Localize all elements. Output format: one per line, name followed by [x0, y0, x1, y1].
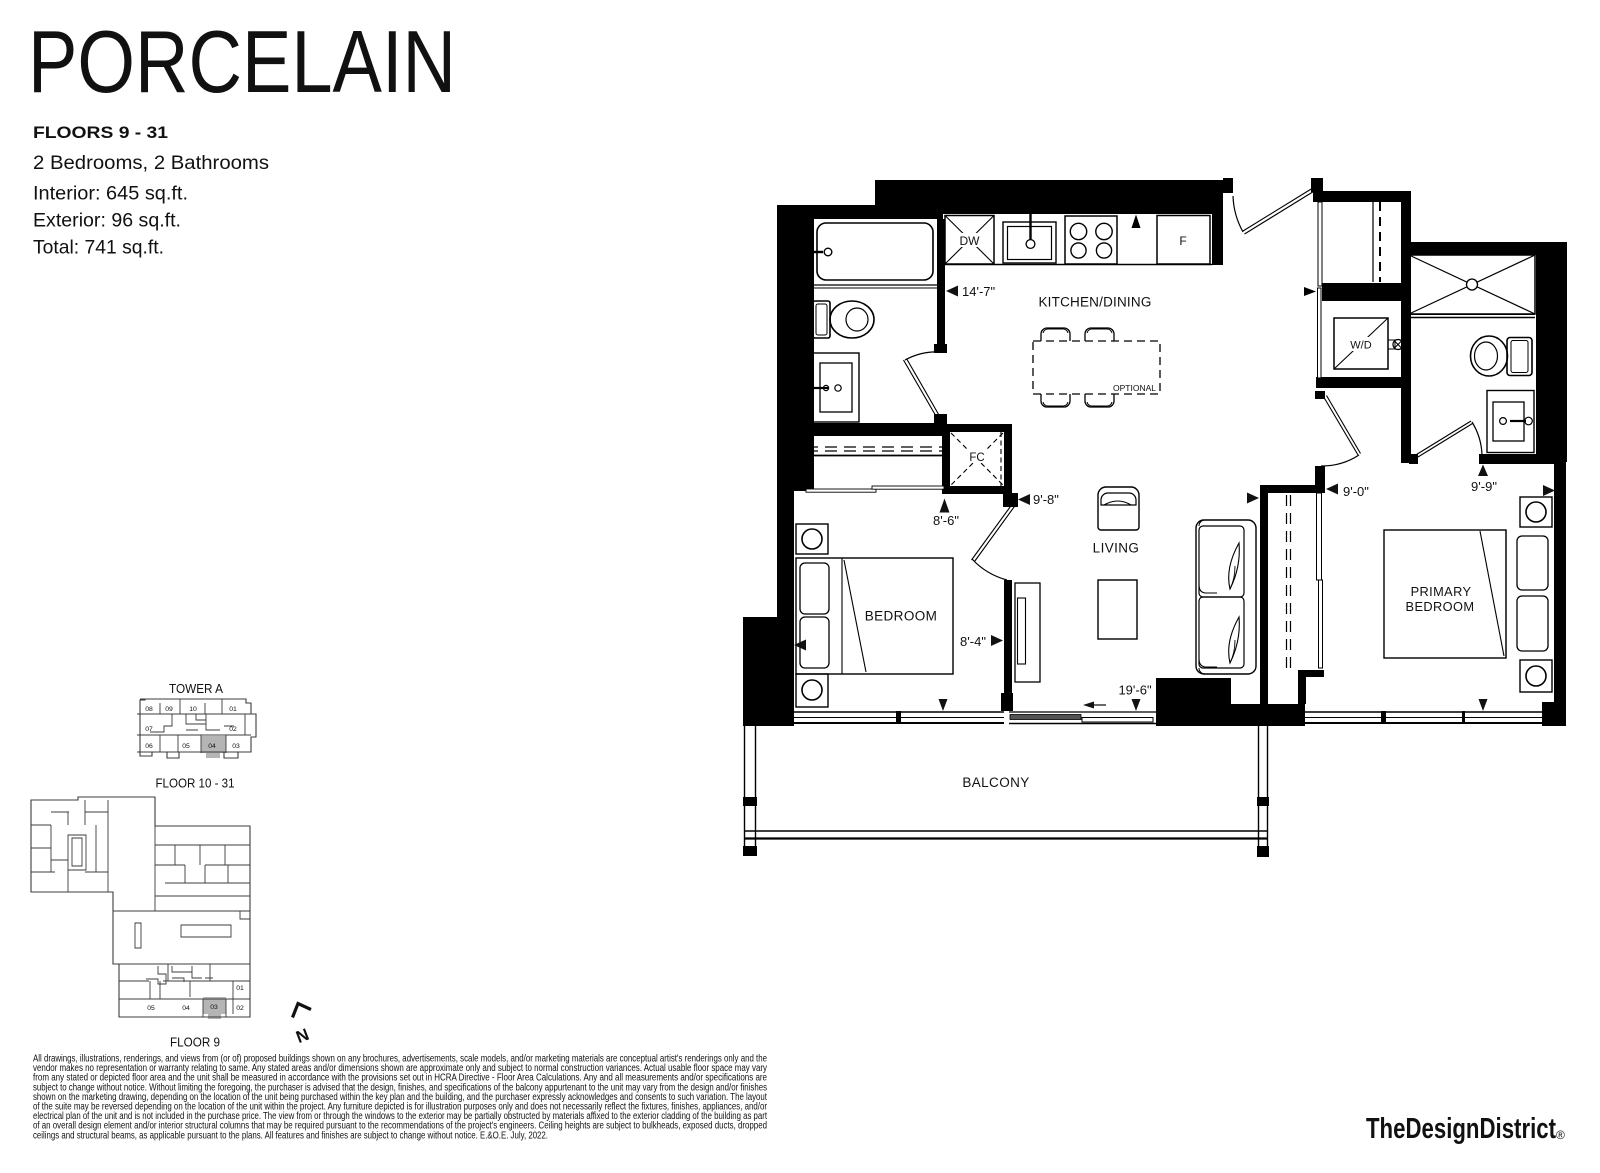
- svg-text:01: 01: [236, 985, 244, 992]
- svg-text:FLOOR 9: FLOOR 9: [170, 1035, 220, 1050]
- svg-text:19'-6": 19'-6": [1118, 683, 1152, 698]
- svg-text:02: 02: [229, 726, 237, 733]
- svg-text:9'-0": 9'-0": [1343, 484, 1369, 499]
- svg-text:07: 07: [145, 726, 153, 733]
- svg-text:8'-6": 8'-6": [933, 513, 959, 528]
- svg-text:01: 01: [229, 706, 237, 713]
- svg-text:ceilings and structural beams,: ceilings and structural beams, as applic…: [33, 1130, 548, 1141]
- svg-text:14'-7": 14'-7": [962, 284, 996, 299]
- svg-text:05: 05: [147, 1005, 155, 1012]
- svg-text:KITCHEN/DINING: KITCHEN/DINING: [1038, 295, 1151, 310]
- svg-text:Interior: 645 sq.ft.: Interior: 645 sq.ft.: [33, 183, 188, 205]
- svg-text:TOWER A: TOWER A: [169, 682, 224, 696]
- svg-text:OPTIONAL: OPTIONAL: [1113, 383, 1156, 393]
- svg-text:04: 04: [208, 743, 216, 750]
- svg-text:2 Bedrooms, 2 Bathrooms: 2 Bedrooms, 2 Bathrooms: [33, 152, 269, 174]
- svg-text:09: 09: [165, 706, 173, 713]
- svg-text:W/D: W/D: [1350, 340, 1371, 352]
- svg-text:FLOOR 10 - 31: FLOOR 10 - 31: [156, 777, 235, 791]
- svg-text:05: 05: [182, 743, 190, 750]
- svg-text:08: 08: [145, 706, 153, 713]
- svg-text:DW: DW: [960, 234, 981, 248]
- svg-text:PORCELAIN: PORCELAIN: [28, 12, 456, 111]
- svg-text:Exterior: 96 sq.ft.: Exterior: 96 sq.ft.: [33, 210, 181, 232]
- svg-text:BEDROOM: BEDROOM: [865, 609, 938, 624]
- svg-text:®: ®: [1556, 1128, 1565, 1142]
- svg-text:BEDROOM: BEDROOM: [1406, 599, 1475, 614]
- svg-text:PRIMARY: PRIMARY: [1411, 584, 1472, 599]
- svg-text:06: 06: [145, 743, 153, 750]
- svg-text:FC: FC: [969, 452, 984, 464]
- svg-text:9'-8": 9'-8": [1033, 492, 1059, 507]
- svg-text:02: 02: [236, 1005, 244, 1012]
- svg-text:10: 10: [189, 706, 197, 713]
- svg-text:8'-4": 8'-4": [960, 634, 986, 649]
- svg-text:BALCONY: BALCONY: [962, 775, 1029, 790]
- svg-text:LIVING: LIVING: [1093, 541, 1140, 556]
- svg-text:Total: 741 sq.ft.: Total: 741 sq.ft.: [33, 237, 164, 259]
- svg-text:FLOORS 9 - 31: FLOORS 9 - 31: [33, 123, 168, 142]
- svg-text:03: 03: [210, 1004, 218, 1011]
- svg-text:03: 03: [232, 743, 240, 750]
- svg-text:9'-9": 9'-9": [1471, 479, 1497, 494]
- svg-text:04: 04: [182, 1005, 190, 1012]
- svg-text:F: F: [1179, 234, 1186, 248]
- svg-text:TheDesignDistrict: TheDesignDistrict: [1366, 1113, 1556, 1145]
